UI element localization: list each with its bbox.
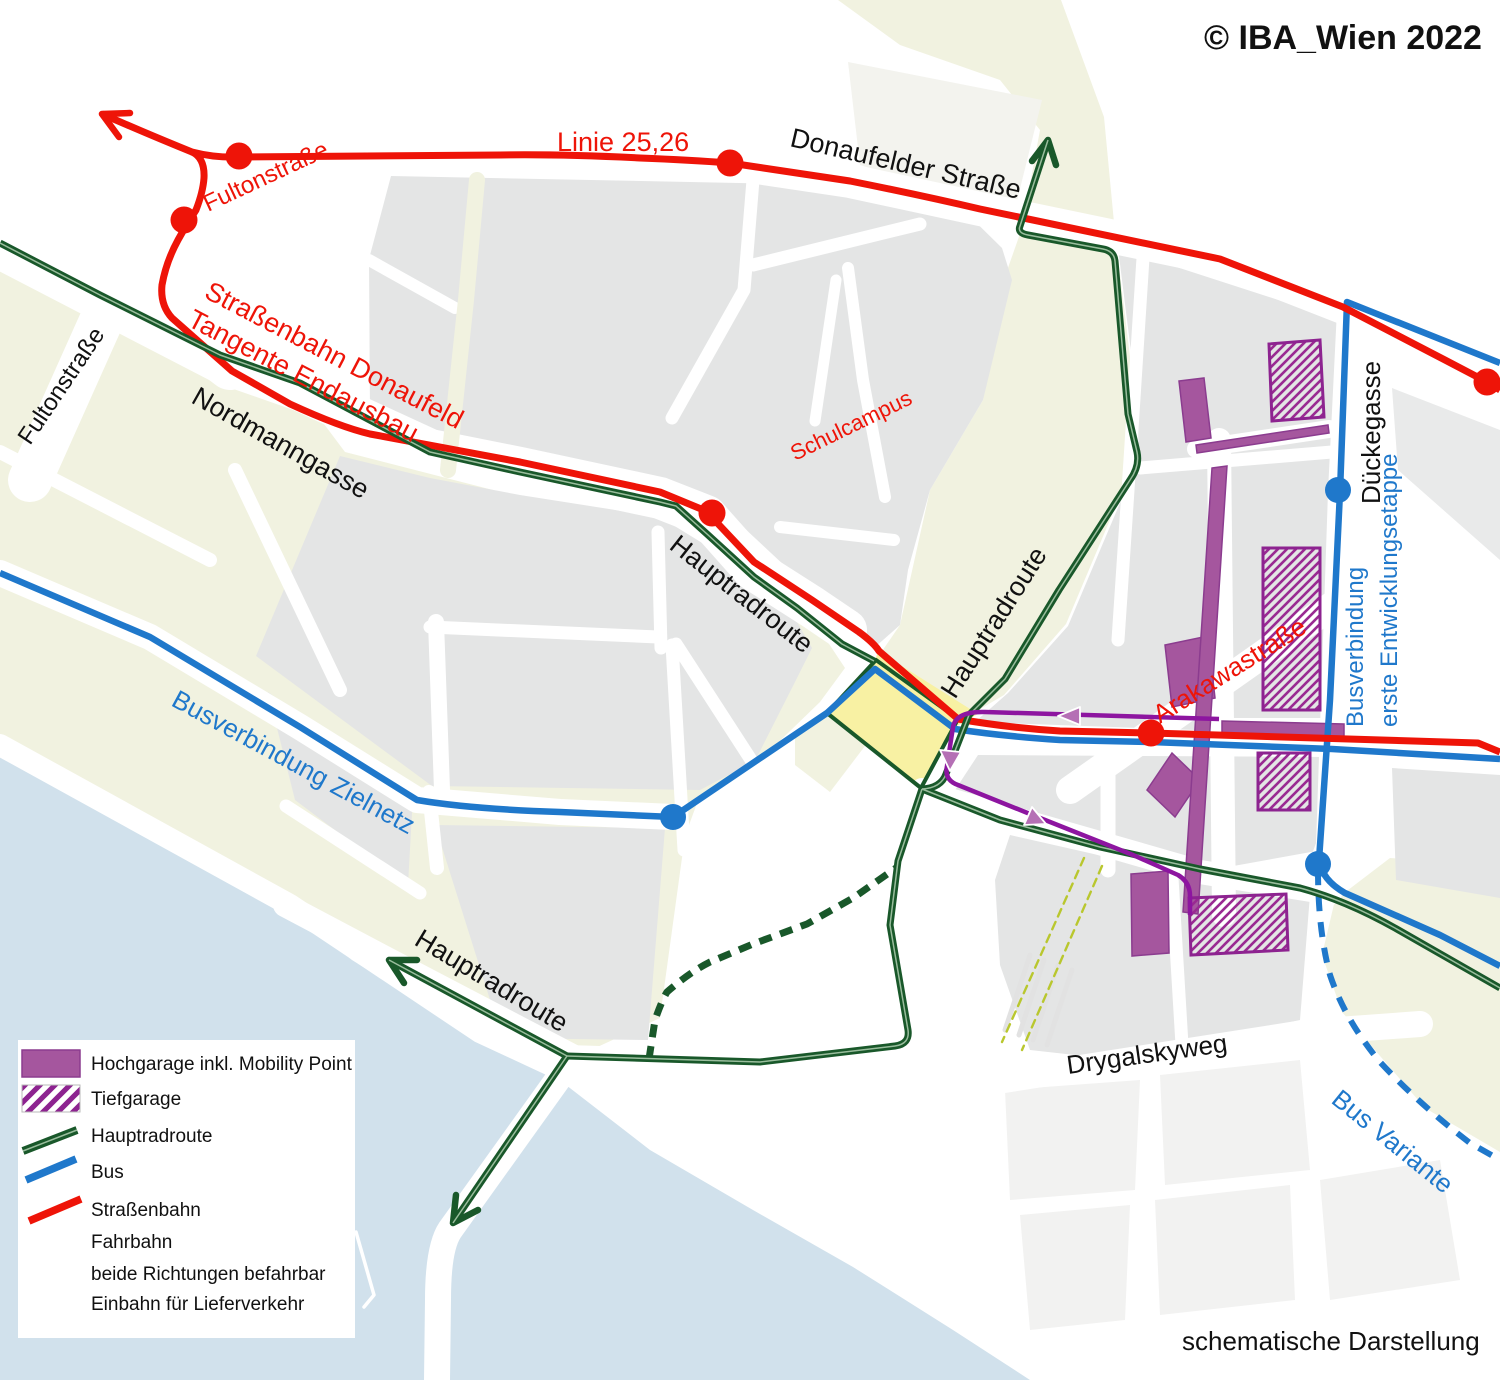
svg-text:© IBA_Wien 2022: © IBA_Wien 2022 (1204, 19, 1482, 57)
svg-text:Hochgarage inkl. Mobility Poin: Hochgarage inkl. Mobility Point (91, 1054, 353, 1075)
svg-text:Linie 25,26: Linie 25,26 (557, 127, 689, 157)
svg-text:schematische Darstellung: schematische Darstellung (1182, 1326, 1480, 1356)
svg-text:Einbahn für Lieferverkehr: Einbahn für Lieferverkehr (91, 1294, 305, 1315)
svg-text:Hauptradroute: Hauptradroute (91, 1126, 212, 1147)
svg-text:Bus: Bus (91, 1162, 124, 1183)
svg-text:Fahrbahn: Fahrbahn (91, 1232, 172, 1253)
svg-text:Straßenbahn: Straßenbahn (91, 1200, 201, 1221)
svg-text:beide Richtungen befahrbar: beide Richtungen befahrbar (91, 1264, 326, 1285)
svg-text:Tiefgarage: Tiefgarage (91, 1089, 181, 1110)
